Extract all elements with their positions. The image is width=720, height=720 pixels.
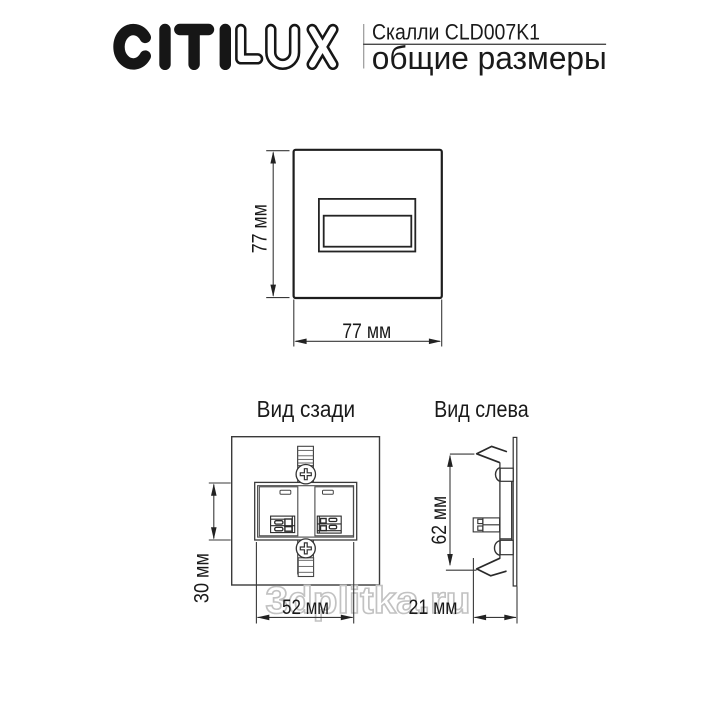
svg-text:общие размеры: общие размеры	[372, 40, 607, 76]
svg-text:62 мм: 62 мм	[426, 496, 451, 545]
svg-text:52 мм: 52 мм	[282, 594, 329, 619]
svg-text:Вид сзади: Вид сзади	[257, 396, 356, 422]
svg-text:Вид слева: Вид слева	[434, 396, 529, 422]
svg-text:77 мм: 77 мм	[247, 204, 272, 253]
svg-text:30 мм: 30 мм	[188, 553, 213, 603]
svg-text:21 мм: 21 мм	[409, 594, 458, 619]
svg-text:77 мм: 77 мм	[342, 318, 391, 343]
